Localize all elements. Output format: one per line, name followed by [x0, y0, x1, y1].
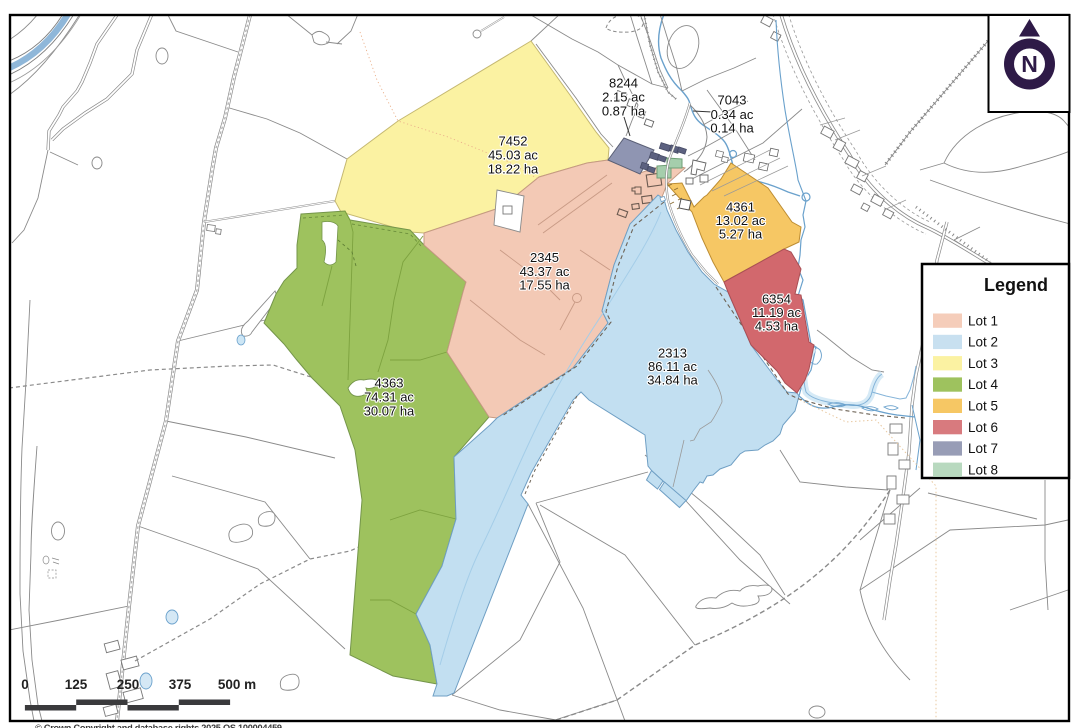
svg-text:4.53 ha: 4.53 ha — [755, 319, 799, 334]
svg-text:Lot 1: Lot 1 — [968, 313, 998, 328]
svg-text:17.55 ha: 17.55 ha — [519, 278, 570, 293]
svg-text:34.84 ha: 34.84 ha — [647, 373, 698, 388]
svg-text:Lot 3: Lot 3 — [968, 356, 998, 371]
svg-text:250: 250 — [117, 677, 140, 692]
svg-text:0: 0 — [21, 677, 29, 692]
svg-text:7043: 7043 — [718, 93, 747, 108]
svg-text:375: 375 — [169, 677, 192, 692]
svg-text:500 m: 500 m — [218, 677, 256, 692]
svg-text:5.27 ha: 5.27 ha — [719, 227, 763, 242]
svg-text:Lot 4: Lot 4 — [968, 377, 999, 392]
svg-text:N: N — [1021, 51, 1038, 77]
svg-text:Lot 7: Lot 7 — [968, 441, 998, 456]
svg-text:125: 125 — [65, 677, 88, 692]
svg-text:30.07 ha: 30.07 ha — [364, 404, 415, 419]
svg-text:Legend: Legend — [984, 275, 1048, 295]
svg-text:8244: 8244 — [609, 76, 638, 91]
svg-text:Lot 6: Lot 6 — [968, 420, 998, 435]
svg-text:2.15 ac: 2.15 ac — [602, 90, 645, 105]
svg-text:7452: 7452 — [499, 134, 528, 149]
svg-text:0.87 ha: 0.87 ha — [602, 104, 646, 119]
svg-text:74.31 ac: 74.31 ac — [364, 390, 414, 405]
svg-text:2345: 2345 — [530, 250, 559, 265]
svg-text:Lot 5: Lot 5 — [968, 399, 998, 414]
svg-text:© Crown Copyright and database: © Crown Copyright and database rights 20… — [35, 723, 282, 728]
svg-text:Lot 2: Lot 2 — [968, 335, 998, 350]
svg-text:45.03 ac: 45.03 ac — [488, 148, 538, 163]
svg-text:4363: 4363 — [375, 376, 404, 391]
svg-text:18.22 ha: 18.22 ha — [488, 162, 539, 177]
svg-text:0.14 ha: 0.14 ha — [710, 121, 754, 136]
svg-text:Lot 8: Lot 8 — [968, 462, 998, 477]
